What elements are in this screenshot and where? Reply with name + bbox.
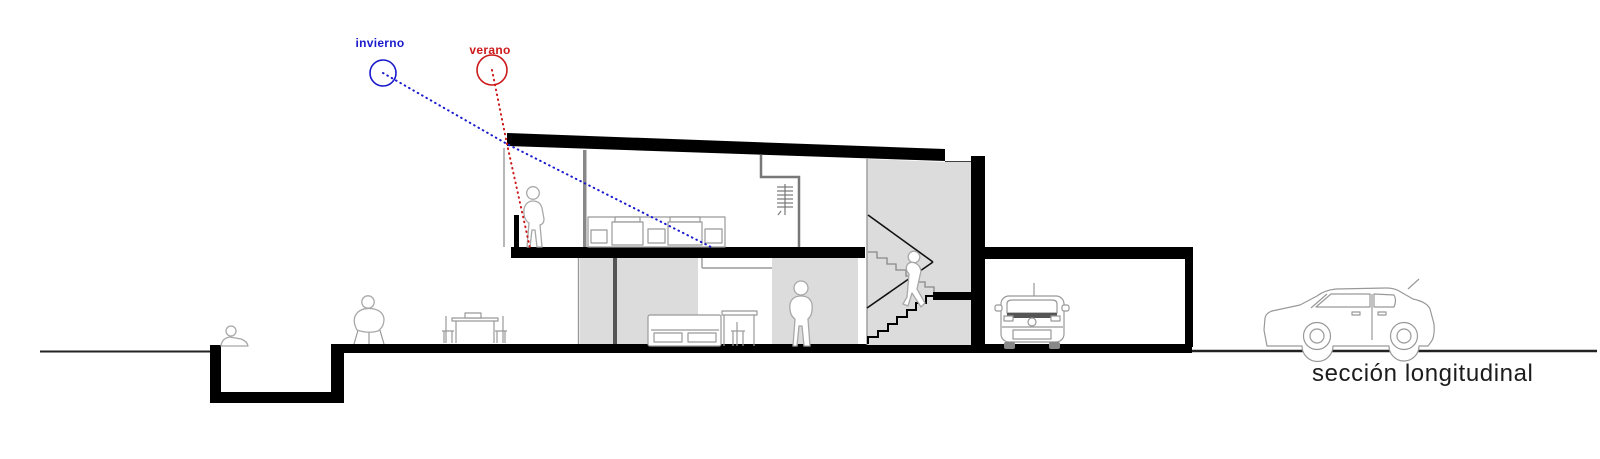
winter-sun-label: invierno — [355, 36, 404, 50]
section-linework — [0, 0, 1600, 459]
sofa — [648, 315, 721, 346]
doorway-beam — [702, 258, 772, 268]
interior-wall-upper — [583, 150, 587, 247]
figure-stool-person — [354, 296, 384, 344]
gray-wall-right — [772, 258, 858, 344]
ground-slab — [331, 344, 1192, 353]
sunken-pool — [210, 345, 344, 403]
dining-table-set — [442, 313, 507, 343]
railing-post — [514, 215, 519, 247]
street-car-side — [1264, 279, 1434, 362]
side-table — [722, 311, 757, 346]
summer-sun-label: verano — [469, 43, 510, 57]
architectural-section-drawing: invierno verano sección longitudinal — [0, 0, 1600, 459]
drawing-caption: sección longitudinal — [1312, 360, 1562, 388]
closet-partition — [761, 155, 799, 247]
figure-pool-person — [221, 326, 248, 346]
garage-right-wall — [1185, 247, 1193, 347]
roof — [507, 133, 945, 161]
garage-ceiling-slab — [985, 247, 1193, 259]
right-wall — [971, 156, 985, 345]
stair-landing — [933, 292, 984, 300]
figure-kitchen-person — [524, 187, 544, 247]
kitchen-counter — [588, 217, 725, 247]
summer-sun-ray — [492, 70, 530, 248]
wardrobe-ladder-icon — [777, 184, 793, 215]
garage-car-rear — [995, 283, 1069, 349]
first-floor-slab — [511, 247, 865, 258]
wall-double-line — [613, 258, 617, 344]
